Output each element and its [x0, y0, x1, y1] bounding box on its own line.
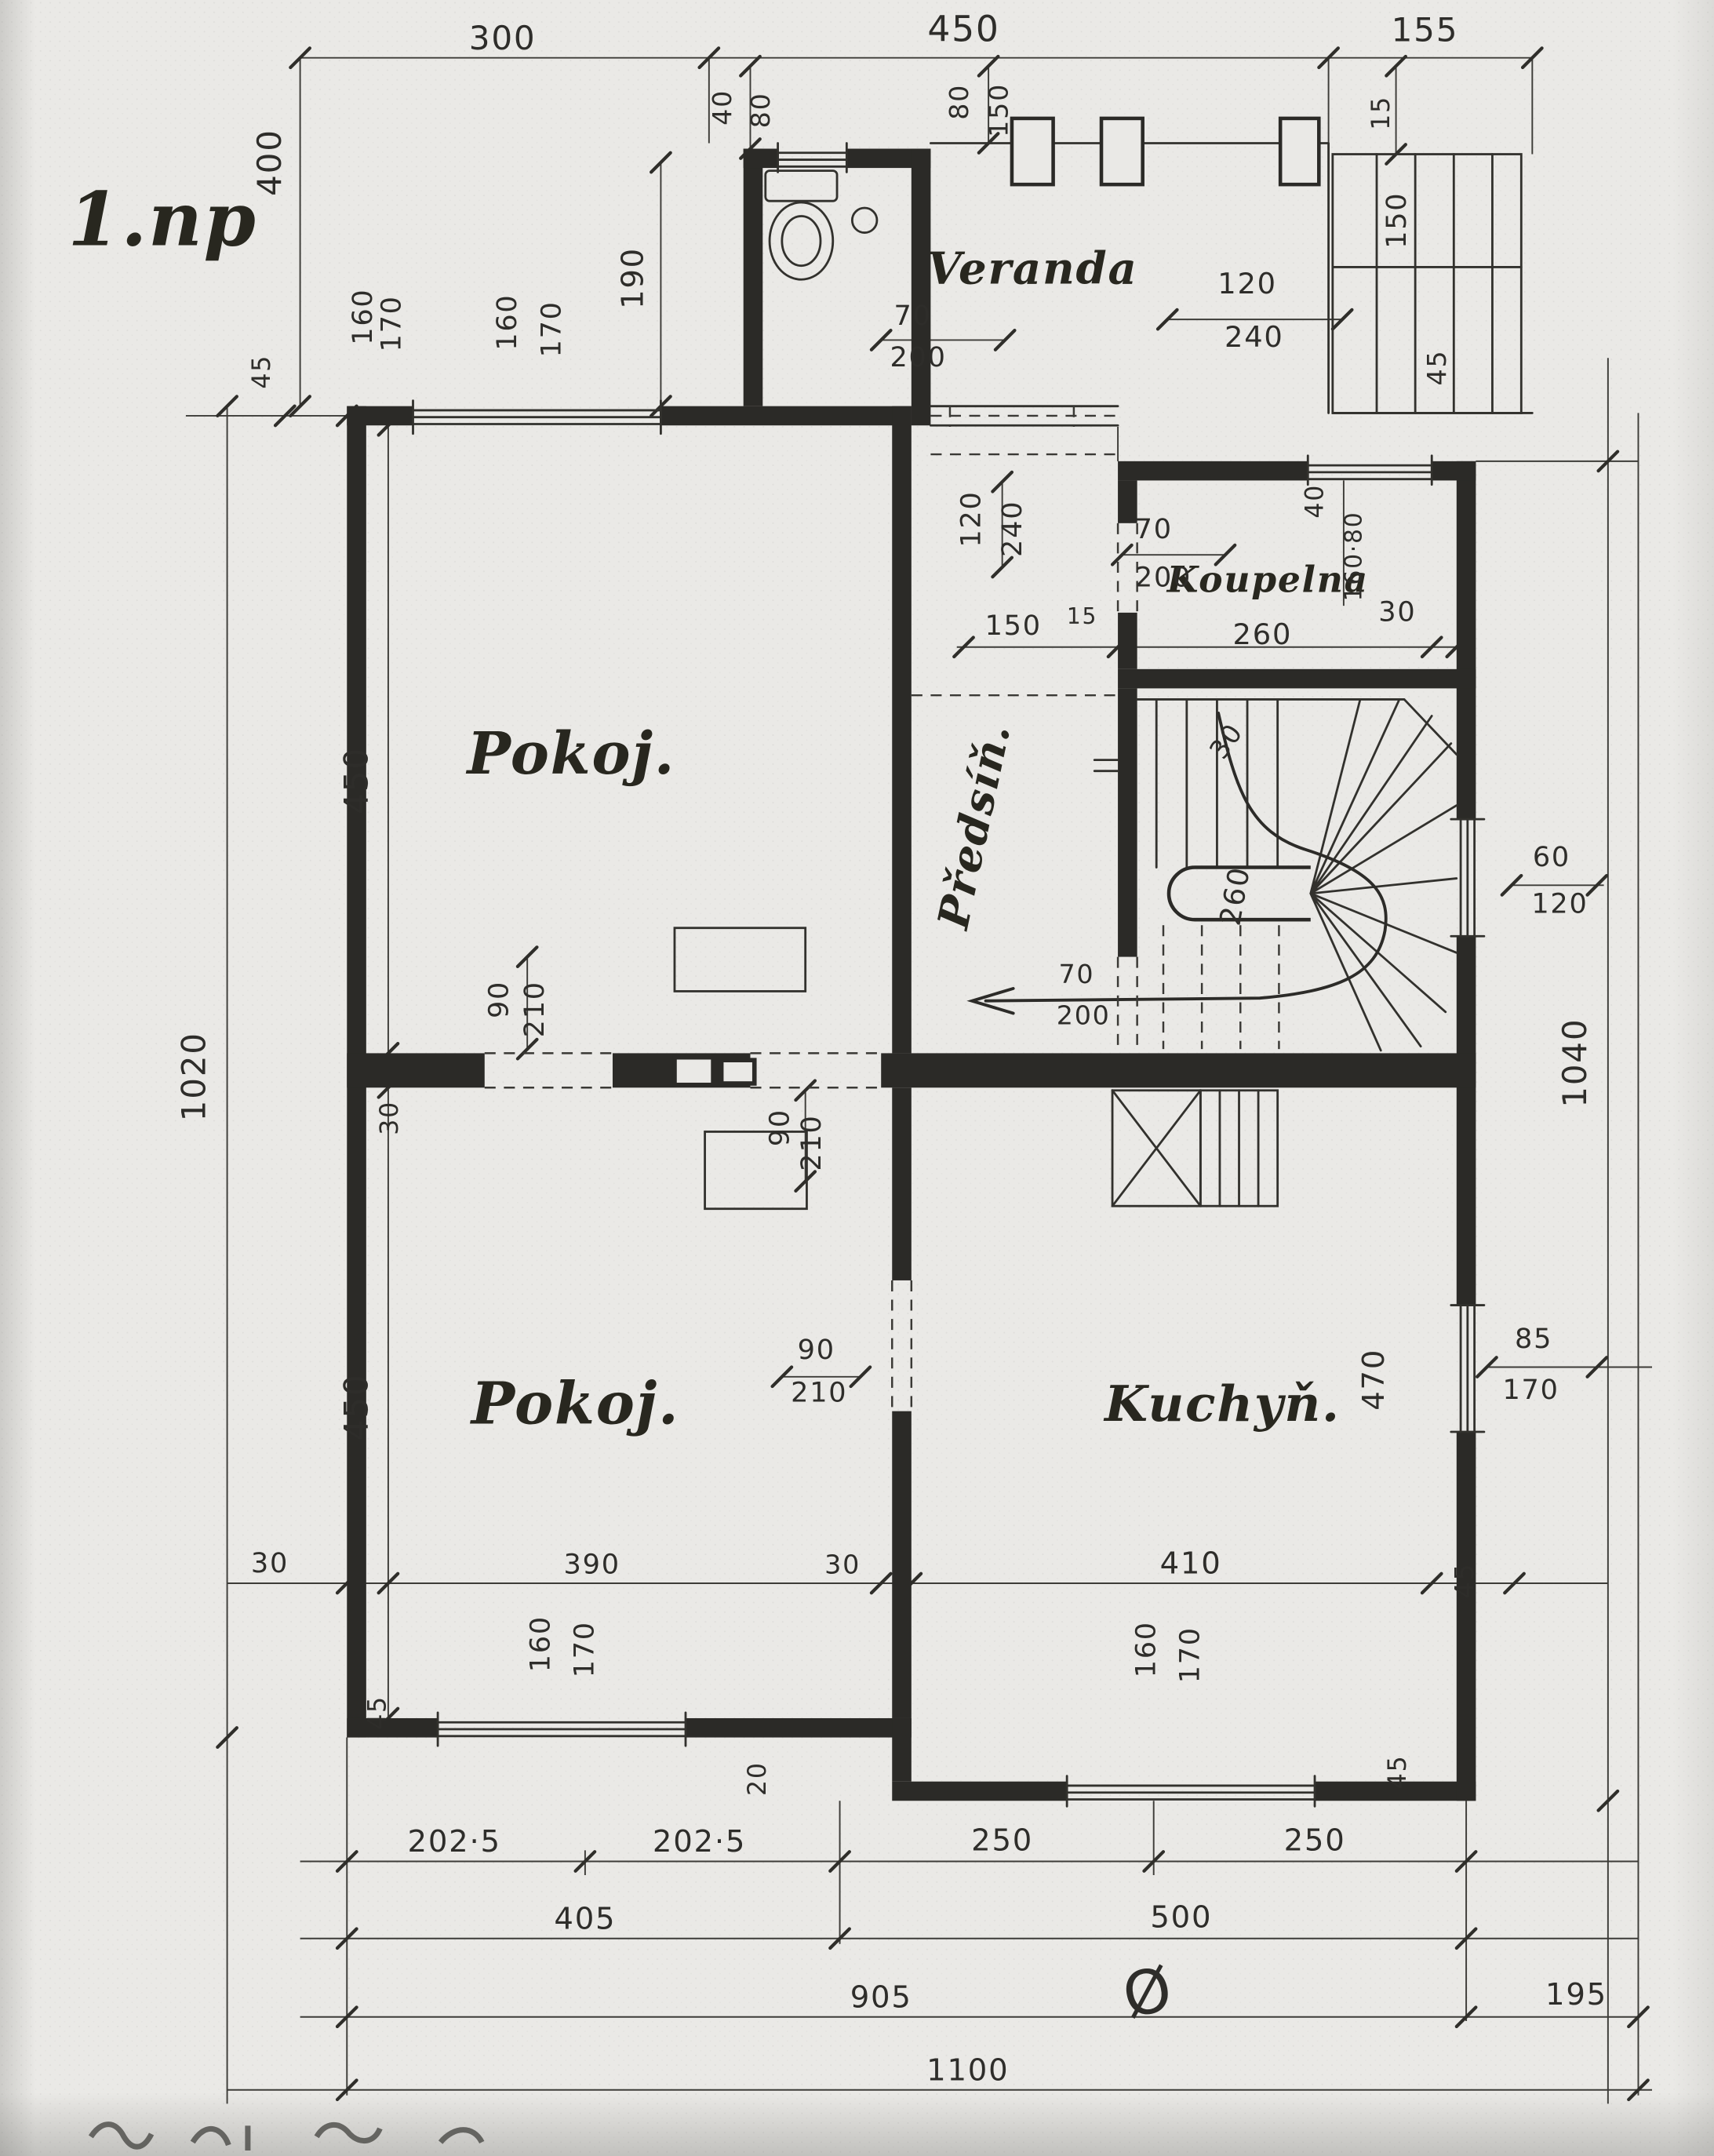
dim-kuchyn-window-85: 85 — [1515, 1323, 1552, 1355]
room-pokoj-upper: Pokoj. — [466, 720, 676, 788]
dim-row2-500: 500 — [1150, 1900, 1212, 1936]
dim-row-30-left: 30 — [251, 1547, 289, 1579]
dim-window-170a: 170 — [376, 295, 408, 351]
dim-stair-window-60: 60 — [1533, 841, 1570, 873]
dim-koupelna-30: 30 — [1378, 595, 1416, 628]
veranda-post — [1012, 118, 1054, 184]
dim-bwindow-170a: 170 — [568, 1621, 600, 1677]
dim-right-1040: 1040 — [1556, 1018, 1594, 1108]
dim-row-30-mid: 30 — [824, 1550, 861, 1580]
dim-wc-window-40: 40 — [707, 89, 737, 126]
dim-row1-250b: 250 — [1284, 1823, 1346, 1858]
dim-bwindow-170b: 170 — [1174, 1626, 1206, 1683]
dim-koupelna-260: 260 — [1233, 617, 1293, 651]
scanned-sheet: 1.np300450155408080150151504540019016017… — [0, 0, 1714, 2156]
room-koupelna: Koupelna — [1166, 559, 1369, 601]
floor-plan-canvas: 1.np300450155408080150151504540019016017… — [0, 0, 1714, 2156]
dim-row1-202-5a: 202·5 — [408, 1824, 501, 1859]
dim-row4-1100: 1100 — [926, 2052, 1009, 2088]
dim-hall-15: 15 — [1067, 603, 1097, 629]
dim-row-390: 390 — [564, 1549, 620, 1581]
room-pokoj-lower: Pokoj. — [470, 1370, 680, 1437]
dim-entry-45: 45 — [1421, 350, 1452, 386]
dim-kuchyn-window-170: 170 — [1502, 1374, 1559, 1406]
dim-koupelna-door-70: 70 — [1135, 513, 1173, 545]
plan-title: 1.np — [68, 176, 257, 263]
dim-bwall-45-right: 45 — [1384, 1755, 1412, 1790]
dim-hall-150: 150 — [985, 610, 1042, 642]
dim-top-300: 300 — [469, 19, 537, 57]
dim-row3-905: 905 — [850, 1979, 912, 2015]
chimney-blocks — [675, 1058, 755, 1085]
dim-stair-door-70: 70 — [1058, 959, 1094, 989]
dim-wall-30-mid: 30 — [376, 1101, 404, 1135]
dim-window-160b: 160 — [491, 294, 523, 351]
dim-room-450-lower: 450 — [337, 1374, 376, 1441]
dim-entry-15: 15 — [1367, 96, 1396, 130]
veranda-post — [1101, 118, 1143, 184]
room-kuchyn: Kuchyň. — [1103, 1375, 1341, 1433]
dim-top-450: 450 — [927, 9, 999, 50]
dim-door-90-c: 90 — [798, 1334, 835, 1366]
room-veranda: Veranda — [927, 242, 1138, 294]
dim-koupelna-door-200: 200 — [1135, 562, 1192, 594]
dim-top-155: 155 — [1392, 11, 1459, 49]
dim-window-160a: 160 — [347, 288, 379, 344]
d im-wc-door-200: 200 — [890, 341, 946, 373]
dim-door-210-b: 210 — [795, 1114, 828, 1171]
dim-entry-150: 150 — [1381, 192, 1413, 249]
dim-row1-250a: 250 — [971, 1823, 1033, 1858]
dim-veranda-post-150: 150 — [984, 83, 1014, 137]
dim-wc-door-70: 70 — [893, 300, 931, 332]
dim-door-210-c: 210 — [791, 1376, 847, 1408]
dim-left-400: 400 — [250, 129, 289, 196]
dim-door-90-a: 90 — [483, 981, 515, 1018]
dim-door-210-a: 210 — [519, 981, 551, 1037]
dim-veranda-120: 120 — [1217, 267, 1277, 300]
dim-stair-window-120: 120 — [1531, 887, 1588, 920]
dim-stair-door-200: 200 — [1057, 1000, 1111, 1031]
dim-row-45-right: 45 — [1449, 1563, 1479, 1599]
dim-row2-405: 405 — [554, 1901, 616, 1936]
dim-veranda-post-80: 80 — [944, 84, 974, 120]
dim-wc-190: 190 — [616, 247, 651, 309]
dim-row1-202-5b: 202·5 — [653, 1824, 746, 1859]
dim-left-1020: 1020 — [174, 1032, 213, 1121]
dim-bwindow-160b: 160 — [1130, 1621, 1162, 1677]
dim-hall-door-120: 120 — [955, 490, 988, 547]
dim-wc-window-80: 80 — [745, 92, 776, 128]
dim-room-450-upper: 450 — [337, 747, 376, 814]
dim-hall-door-240: 240 — [996, 501, 1028, 557]
veranda-post — [1280, 118, 1319, 184]
dim-koupelna-window-160-80: 160·80 — [1341, 511, 1368, 601]
dim-door-90-b: 90 — [764, 1109, 796, 1146]
dim-veranda-240: 240 — [1225, 320, 1284, 354]
dim-row-410: 410 — [1160, 1546, 1222, 1582]
dim-window-170b: 170 — [535, 300, 567, 357]
dim-bwall-45-left: 45 — [363, 1695, 391, 1730]
dim-kuchyn-470: 470 — [1356, 1349, 1392, 1411]
dim-row3-195: 195 — [1545, 1977, 1607, 2012]
dim-bwall-20: 20 — [744, 1761, 772, 1796]
dim-bwindow-160a: 160 — [524, 1615, 556, 1672]
dim-wall-45-topleft: 45 — [248, 355, 276, 389]
dim-koupelna-window-40: 40 — [1301, 484, 1330, 519]
